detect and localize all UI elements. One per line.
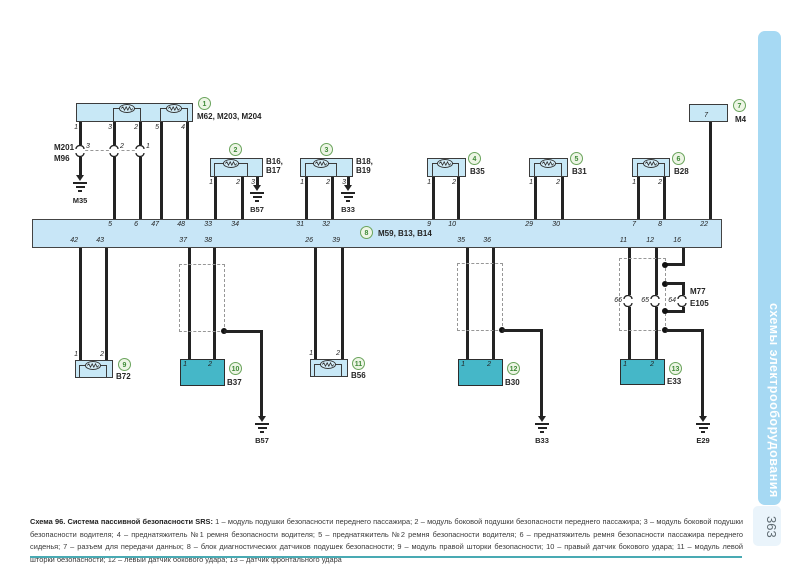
bus-pin: 30 bbox=[546, 221, 560, 229]
wire-segment bbox=[260, 330, 263, 418]
bus-pin: 5 bbox=[98, 221, 112, 229]
ground-icon bbox=[695, 416, 711, 433]
bus-pin: 31 bbox=[290, 221, 304, 229]
component-number-badge: 2 bbox=[229, 143, 242, 156]
component-label: M4 bbox=[735, 115, 746, 124]
bus-pin: 29 bbox=[519, 221, 533, 229]
inline-connector-icon bbox=[650, 295, 660, 307]
bus-pin: 33 bbox=[198, 221, 212, 229]
ground-icon bbox=[254, 416, 270, 433]
pin-number: 1 bbox=[622, 179, 636, 187]
wire-segment bbox=[701, 329, 704, 418]
footer-rule bbox=[30, 556, 742, 558]
component-label: B16, B17 bbox=[266, 157, 283, 175]
bus-pin: 22 bbox=[694, 221, 708, 229]
connector-pin: 2 bbox=[120, 143, 134, 151]
connector-label: M77 bbox=[690, 287, 706, 296]
pin-number: 2 bbox=[648, 179, 662, 187]
ground-icon bbox=[249, 185, 265, 202]
connector-pin: 66 bbox=[608, 297, 622, 305]
component-label: B35 bbox=[470, 167, 485, 176]
ground-icon bbox=[72, 175, 88, 192]
wire-segment bbox=[540, 329, 543, 418]
component-number-badge: 8 bbox=[360, 226, 373, 239]
component-number-badge: 11 bbox=[352, 357, 365, 370]
wire-segment bbox=[682, 282, 685, 296]
pin-number: 2 bbox=[226, 179, 240, 187]
bus-pin: 35 bbox=[451, 237, 465, 245]
bus-pin: 6 bbox=[124, 221, 138, 229]
wire-segment bbox=[502, 329, 543, 332]
wire-segment bbox=[305, 177, 308, 219]
bus-pin: 8 bbox=[648, 221, 662, 229]
component-label: B30 bbox=[505, 378, 520, 387]
pin-number: 2 bbox=[546, 179, 560, 187]
pin-number: 1 bbox=[173, 361, 187, 369]
bus-pin: 43 bbox=[90, 237, 104, 245]
connector-pin: 1 bbox=[146, 143, 160, 151]
pin-number: 1 bbox=[519, 179, 533, 187]
wire-segment bbox=[666, 310, 683, 313]
bus-pin: 37 bbox=[173, 237, 187, 245]
component-number-badge: 10 bbox=[229, 362, 242, 375]
wire-segment bbox=[139, 157, 142, 219]
wire-segment bbox=[709, 122, 712, 219]
wire-segment bbox=[224, 330, 263, 333]
inline-connector-icon bbox=[135, 145, 145, 157]
component-label: B56 bbox=[351, 371, 366, 380]
figure-caption: Схема 96. Система пассивной безопасности… bbox=[30, 516, 743, 566]
bus-pin: 32 bbox=[316, 221, 330, 229]
component-label: B28 bbox=[674, 167, 689, 176]
chapter-sidebar-text: схемы электрооборудования bbox=[759, 303, 781, 498]
wire-segment bbox=[666, 329, 704, 332]
caption-title: Схема 96. Система пассивной безопасности… bbox=[30, 517, 213, 526]
pin-number: 1 bbox=[199, 179, 213, 187]
wire-segment bbox=[113, 157, 116, 219]
wire-segment bbox=[314, 248, 317, 359]
pin-number: 7 bbox=[694, 112, 708, 120]
inline-connector-icon bbox=[109, 145, 119, 157]
ground-label: M35 bbox=[65, 196, 95, 205]
wire-segment bbox=[534, 177, 537, 219]
squib-icon bbox=[313, 159, 329, 168]
component-number-badge: 1 bbox=[198, 97, 211, 110]
shield-dashed-box bbox=[179, 264, 225, 332]
squib-icon bbox=[320, 360, 336, 369]
ground-icon bbox=[534, 416, 550, 433]
bus-pin: 34 bbox=[225, 221, 239, 229]
component-number-badge: 9 bbox=[118, 358, 131, 371]
pin-number: 1 bbox=[290, 179, 304, 187]
ground-label: B33 bbox=[527, 436, 557, 445]
wire-segment bbox=[561, 177, 564, 219]
bus-pin: 42 bbox=[64, 237, 78, 245]
squib-icon bbox=[85, 361, 101, 370]
bus-pin: 11 bbox=[613, 237, 627, 245]
wire-segment bbox=[666, 263, 683, 266]
squib-icon bbox=[119, 104, 135, 113]
wire-segment bbox=[214, 177, 217, 219]
component-label: B18, B19 bbox=[356, 157, 373, 175]
wire-segment bbox=[186, 122, 189, 219]
pin-number: 1 bbox=[64, 124, 78, 132]
wire-segment bbox=[666, 282, 683, 285]
connector-label: M201 bbox=[54, 143, 74, 152]
wire-segment bbox=[663, 177, 666, 219]
pin-number: 1 bbox=[451, 361, 465, 369]
bus-pin: 48 bbox=[171, 221, 185, 229]
squib-icon bbox=[643, 159, 659, 168]
wire-segment bbox=[457, 177, 460, 219]
wire-segment bbox=[637, 177, 640, 219]
ground-label: B33 bbox=[333, 205, 363, 214]
ground-label: B57 bbox=[247, 436, 277, 445]
pin-number: 3 bbox=[98, 124, 112, 132]
pin-number: 2 bbox=[124, 124, 138, 132]
junction-dot bbox=[662, 262, 668, 268]
ground-label: B57 bbox=[242, 205, 272, 214]
bus-pin: 10 bbox=[442, 221, 456, 229]
pin-number: 5 bbox=[145, 124, 159, 132]
connector-label: E105 bbox=[690, 299, 709, 308]
pin-number: 2 bbox=[640, 361, 654, 369]
bus-pin: 7 bbox=[622, 221, 636, 229]
squib-icon bbox=[223, 159, 239, 168]
bus-pin: 47 bbox=[145, 221, 159, 229]
bus-label: M59, B13, B14 bbox=[378, 229, 432, 238]
component-number-badge: 3 bbox=[320, 143, 333, 156]
wire-segment bbox=[79, 157, 82, 177]
pin-number: 2 bbox=[326, 350, 340, 358]
bus-pin: 16 bbox=[667, 237, 681, 245]
page-number: 363 bbox=[757, 510, 779, 544]
bus-pin: 38 bbox=[198, 237, 212, 245]
component-number-badge: 5 bbox=[570, 152, 583, 165]
inline-connector-icon bbox=[623, 295, 633, 307]
shield-dashed-box bbox=[457, 263, 503, 331]
component-number-badge: 13 bbox=[669, 362, 682, 375]
pin-number: 2 bbox=[316, 179, 330, 187]
component-label: E33 bbox=[667, 377, 681, 386]
pin-number: 1 bbox=[613, 361, 627, 369]
bus-pin: 39 bbox=[326, 237, 340, 245]
pin-number: 2 bbox=[477, 361, 491, 369]
wire-segment bbox=[432, 177, 435, 219]
bus-pin: 12 bbox=[640, 237, 654, 245]
wire-segment bbox=[79, 248, 82, 360]
pin-number: 1 bbox=[299, 350, 313, 358]
component-label: B37 bbox=[227, 378, 242, 387]
ground-label: E29 bbox=[688, 436, 718, 445]
ground-icon bbox=[340, 185, 356, 202]
inline-connector-icon bbox=[75, 145, 85, 157]
squib-icon bbox=[166, 104, 182, 113]
squib-icon bbox=[437, 159, 453, 168]
component-label: B31 bbox=[572, 167, 587, 176]
component-number-badge: 12 bbox=[507, 362, 520, 375]
manual-page: 8 M59, B13, B14 5 6 47 48 33 34 31 32 9 … bbox=[0, 0, 800, 588]
pin-number: 4 bbox=[171, 124, 185, 132]
bus-pin: 36 bbox=[477, 237, 491, 245]
wire-segment bbox=[160, 122, 163, 219]
connector-pin: 3 bbox=[86, 143, 100, 151]
junction-dot bbox=[662, 308, 668, 314]
pin-number: 2 bbox=[90, 351, 104, 359]
pin-number: 2 bbox=[442, 179, 456, 187]
wire-segment bbox=[341, 248, 344, 359]
component-number-badge: 4 bbox=[468, 152, 481, 165]
connector-label: M96 bbox=[54, 154, 70, 163]
bus-pin: 26 bbox=[299, 237, 313, 245]
squib-icon bbox=[540, 159, 556, 168]
pin-number: 2 bbox=[198, 361, 212, 369]
bus-pin: 9 bbox=[417, 221, 431, 229]
component-number-badge: 6 bbox=[672, 152, 685, 165]
component-number-badge: 7 bbox=[733, 99, 746, 112]
component-label: M62, M203, M204 bbox=[197, 112, 261, 121]
pin-number: 1 bbox=[64, 351, 78, 359]
connector-pin: 65 bbox=[635, 297, 649, 305]
inline-connector-icon bbox=[677, 295, 687, 307]
connector-pin: 64 bbox=[662, 297, 676, 305]
pin-number: 1 bbox=[417, 179, 431, 187]
wire-segment bbox=[105, 248, 108, 360]
component-label: B72 bbox=[116, 372, 131, 381]
